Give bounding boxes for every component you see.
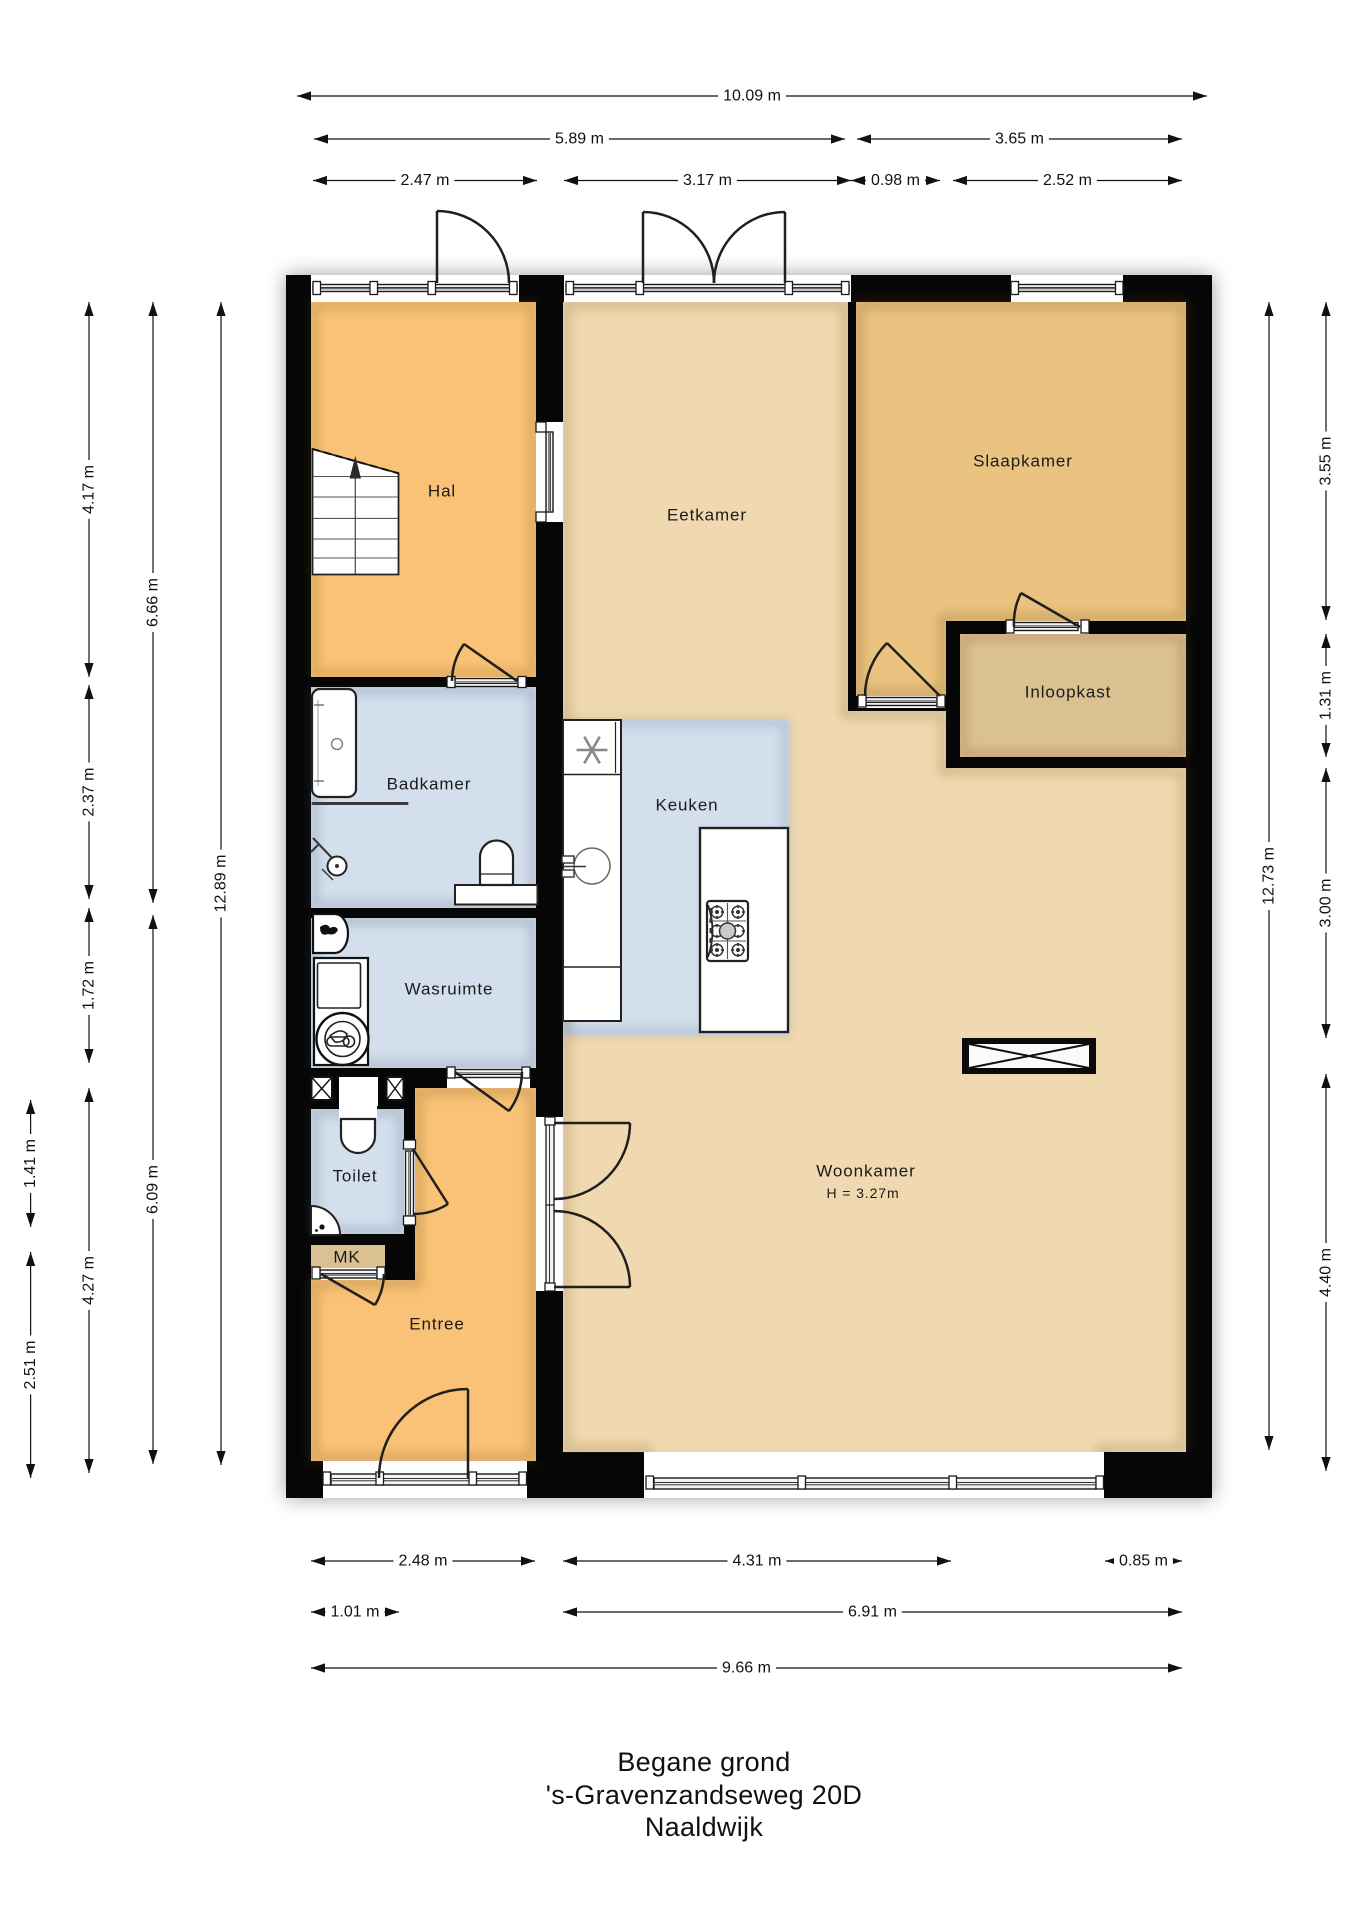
- svg-text:'s-Gravenzandseweg 20D: 's-Gravenzandseweg 20D: [546, 1780, 862, 1810]
- svg-text:1.72 m: 1.72 m: [81, 961, 98, 1010]
- svg-text:6.91 m: 6.91 m: [848, 1604, 897, 1621]
- svg-text:Hal: Hal: [428, 482, 456, 501]
- svg-text:1.01 m: 1.01 m: [331, 1604, 380, 1621]
- svg-text:2.47 m: 2.47 m: [401, 172, 450, 189]
- svg-text:1.41 m: 1.41 m: [22, 1139, 39, 1188]
- svg-text:2.48 m: 2.48 m: [399, 1553, 448, 1570]
- svg-text:1.31 m: 1.31 m: [1318, 671, 1335, 720]
- svg-text:12.89 m: 12.89 m: [213, 855, 230, 913]
- svg-text:Entree: Entree: [409, 1315, 465, 1334]
- svg-text:12.73 m: 12.73 m: [1261, 847, 1278, 905]
- svg-text:Eetkamer: Eetkamer: [667, 506, 747, 525]
- svg-text:4.40 m: 4.40 m: [1318, 1248, 1335, 1297]
- svg-text:9.66 m: 9.66 m: [722, 1660, 771, 1677]
- svg-text:4.31 m: 4.31 m: [733, 1553, 782, 1570]
- svg-text:Slaapkamer: Slaapkamer: [973, 452, 1073, 471]
- svg-text:Wasruimte: Wasruimte: [405, 980, 494, 999]
- svg-text:Begane grond: Begane grond: [617, 1747, 790, 1777]
- svg-text:H = 3.27m: H = 3.27m: [826, 1185, 899, 1201]
- svg-text:4.27 m: 4.27 m: [81, 1256, 98, 1305]
- svg-text:6.66 m: 6.66 m: [145, 578, 162, 627]
- svg-text:0.98 m: 0.98 m: [871, 172, 920, 189]
- svg-text:3.65 m: 3.65 m: [995, 131, 1044, 148]
- svg-text:Inloopkast: Inloopkast: [1025, 683, 1112, 702]
- svg-text:2.51 m: 2.51 m: [22, 1341, 39, 1390]
- svg-text:10.09 m: 10.09 m: [723, 88, 781, 105]
- svg-text:3.17 m: 3.17 m: [683, 172, 732, 189]
- svg-text:3.00 m: 3.00 m: [1318, 879, 1335, 928]
- svg-text:2.37 m: 2.37 m: [81, 768, 98, 817]
- svg-text:4.17 m: 4.17 m: [81, 465, 98, 514]
- svg-text:Keuken: Keuken: [655, 796, 718, 815]
- svg-text:Woonkamer: Woonkamer: [816, 1162, 915, 1181]
- svg-text:6.09 m: 6.09 m: [145, 1165, 162, 1214]
- svg-text:Naaldwijk: Naaldwijk: [645, 1812, 763, 1842]
- svg-text:Toilet: Toilet: [332, 1167, 377, 1186]
- svg-text:2.52 m: 2.52 m: [1043, 172, 1092, 189]
- svg-text:0.85 m: 0.85 m: [1119, 1553, 1168, 1570]
- svg-text:5.89 m: 5.89 m: [555, 131, 604, 148]
- svg-text:Badkamer: Badkamer: [387, 775, 472, 794]
- svg-text:MK: MK: [333, 1248, 360, 1267]
- svg-text:3.55 m: 3.55 m: [1318, 437, 1335, 486]
